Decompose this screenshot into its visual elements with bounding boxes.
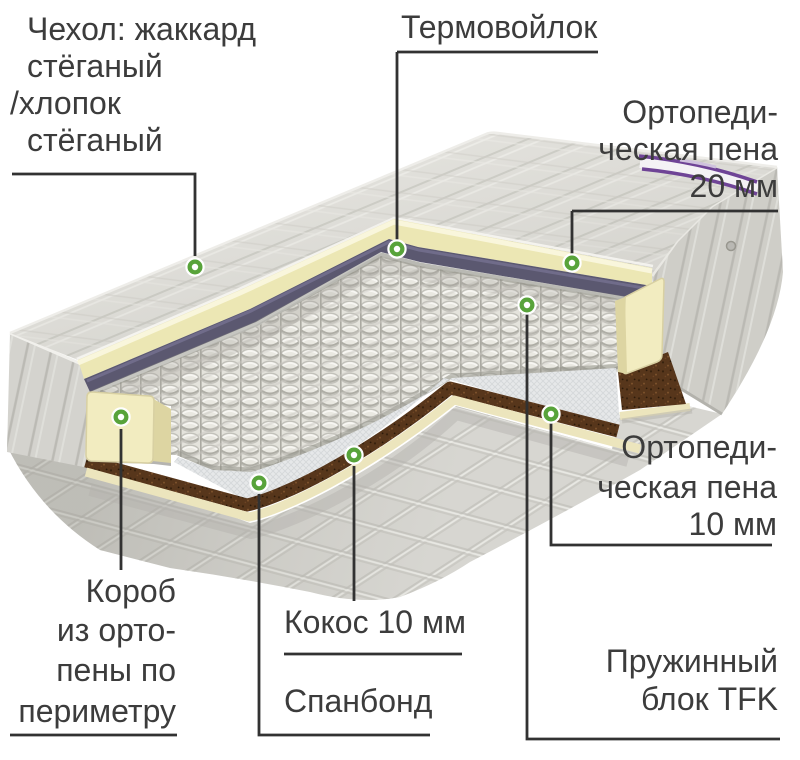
svg-text:из орто-: из орто- [57,612,176,648]
svg-text:Спанбонд: Спанбонд [284,683,433,719]
svg-text:20 мм: 20 мм [690,168,778,204]
svg-text:10 мм: 10 мм [689,506,777,542]
svg-text:Пружинный: Пружинный [606,643,778,679]
svg-text:ческая пена: ческая пена [598,131,778,167]
svg-text:пены по: пены по [56,652,176,688]
svg-text:Кокос 10 мм: Кокос 10 мм [284,604,466,640]
svg-text:стёганый: стёганый [27,48,163,84]
svg-text:Ортопеди-: Ортопеди- [621,429,777,465]
svg-text:/хлопок: /хлопок [10,85,122,121]
svg-text:Термовойлок: Термовойлок [401,9,598,45]
svg-text:Короб: Короб [86,573,176,609]
svg-text:периметру: периметру [18,693,176,729]
svg-text:Ортопеди-: Ортопеди- [622,94,778,130]
svg-text:стёганый: стёганый [27,122,163,158]
svg-text:ческая пена: ческая пена [597,469,777,505]
svg-text:блок TFK: блок TFK [641,681,778,717]
svg-text:Чехол: жаккард: Чехол: жаккард [27,11,256,47]
